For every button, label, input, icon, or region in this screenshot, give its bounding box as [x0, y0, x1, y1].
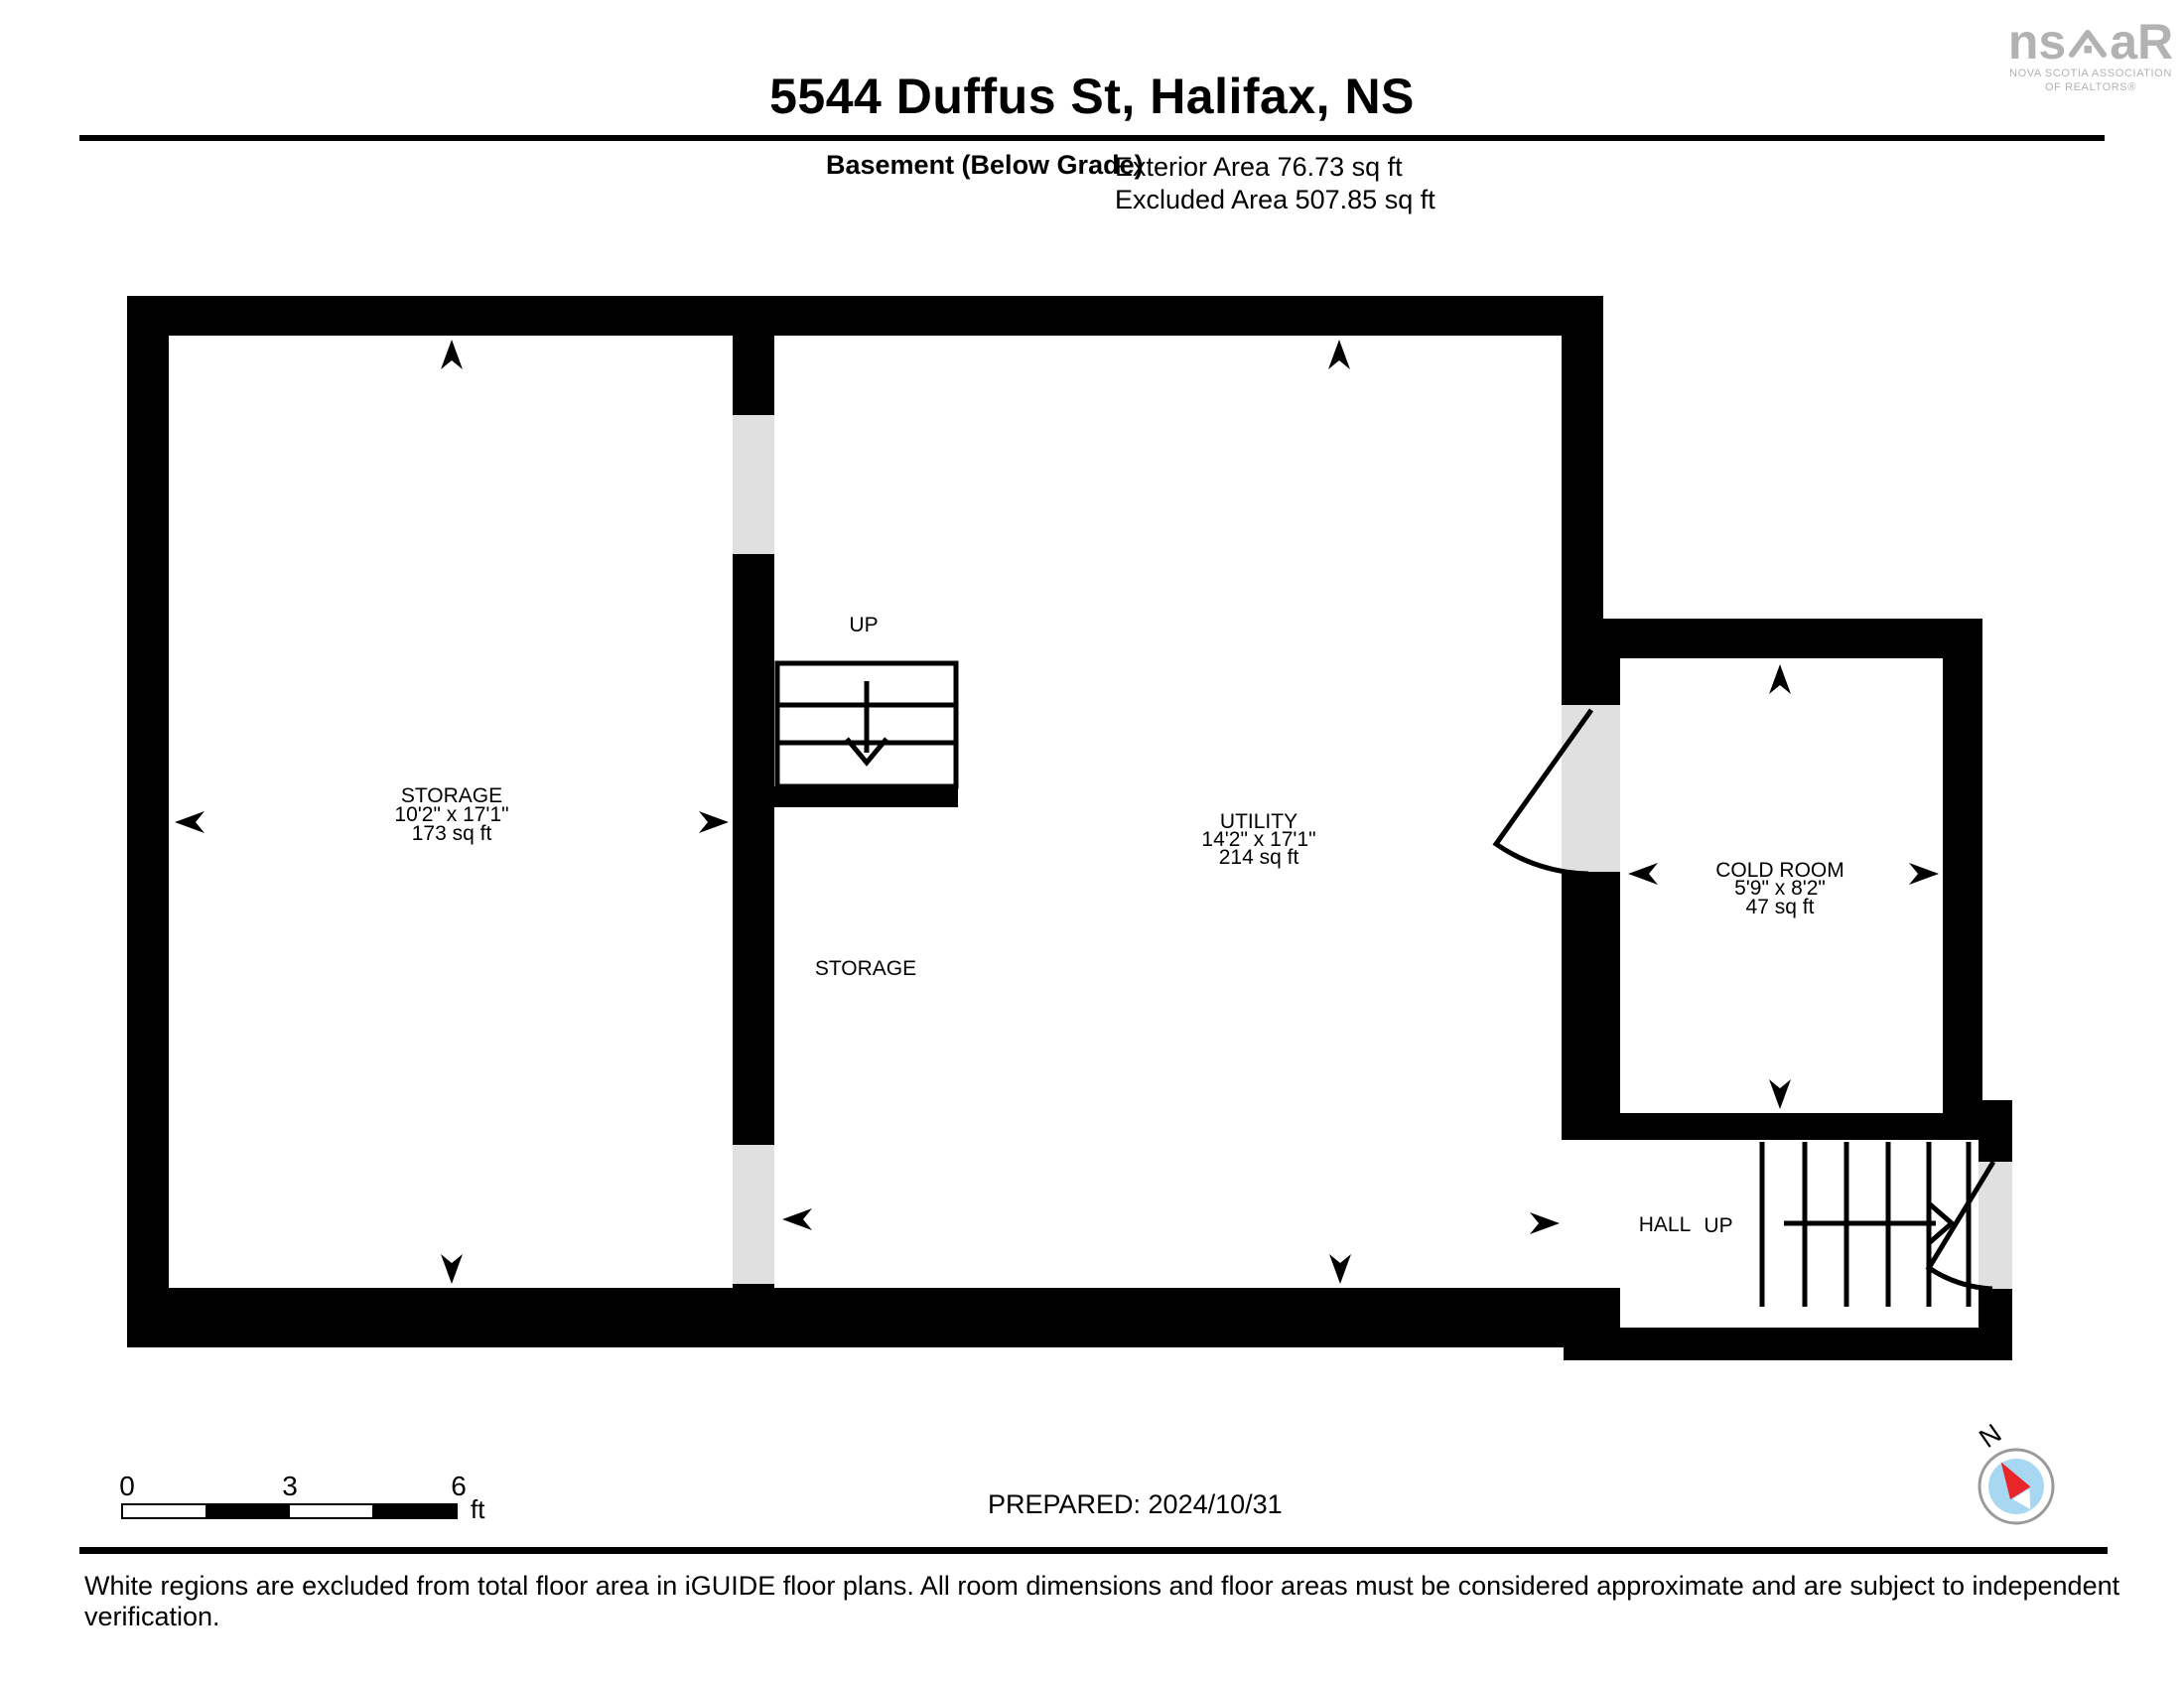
cold-room-arrow-up [1769, 664, 1791, 694]
storage-arrow-right [699, 811, 729, 833]
floor-plan-page: 5544 Duffus St, Halifax, NS Basement (Be… [0, 0, 2184, 1688]
utility-room-area: 214 sq ft [1219, 846, 1299, 869]
cold-room-area: 47 sq ft [1746, 896, 1815, 918]
door-cold-room [1562, 705, 1620, 872]
stairs-upper-label: UP [849, 614, 878, 636]
storage-arrow-up [441, 340, 463, 369]
scale-tick-6: 6 [451, 1471, 467, 1501]
prepared-date-label: PREPARED: 2024/10/31 [988, 1489, 1283, 1520]
cold-room-arrow-left [1628, 863, 1658, 885]
utility-arrow-up [1328, 340, 1350, 369]
floor-plan-svg: STORAGE 10'2" x 17'1" 173 sq ft UP UTILI… [0, 0, 2184, 1688]
compass-icon: N [1974, 1418, 2053, 1523]
utility-arrow-down [1329, 1254, 1351, 1284]
footer-divider [79, 1547, 2108, 1554]
stairs-lower [1762, 1142, 1969, 1307]
exterior-walls [127, 296, 2012, 1360]
door-openings [733, 415, 2012, 1289]
storage-arrow-left [175, 811, 205, 833]
storage-nook-label: STORAGE [815, 957, 916, 980]
compass-north-label: N [1974, 1418, 2006, 1454]
cold-room-arrow-right [1909, 863, 1939, 885]
storage-arrow-down [441, 1254, 463, 1284]
disclaimer-text: White regions are excluded from total fl… [84, 1571, 2184, 1632]
scale-unit-label: ft [471, 1494, 485, 1524]
scale-bar: 0 3 6 ft [119, 1471, 485, 1524]
scale-tick-0: 0 [119, 1471, 135, 1501]
cold-room-arrow-down [1769, 1079, 1791, 1109]
utility-arrow-right [1530, 1212, 1560, 1234]
door-storage-upper [733, 415, 774, 554]
door-storage-lower [733, 1145, 774, 1284]
stairs-lower-label: UP [1704, 1214, 1732, 1237]
storage-room-area: 173 sq ft [412, 822, 492, 845]
utility-arrow-left [782, 1208, 812, 1230]
scale-tick-3: 3 [282, 1471, 298, 1501]
stairs-upper [777, 663, 956, 786]
hall-label: HALL [1639, 1213, 1692, 1236]
